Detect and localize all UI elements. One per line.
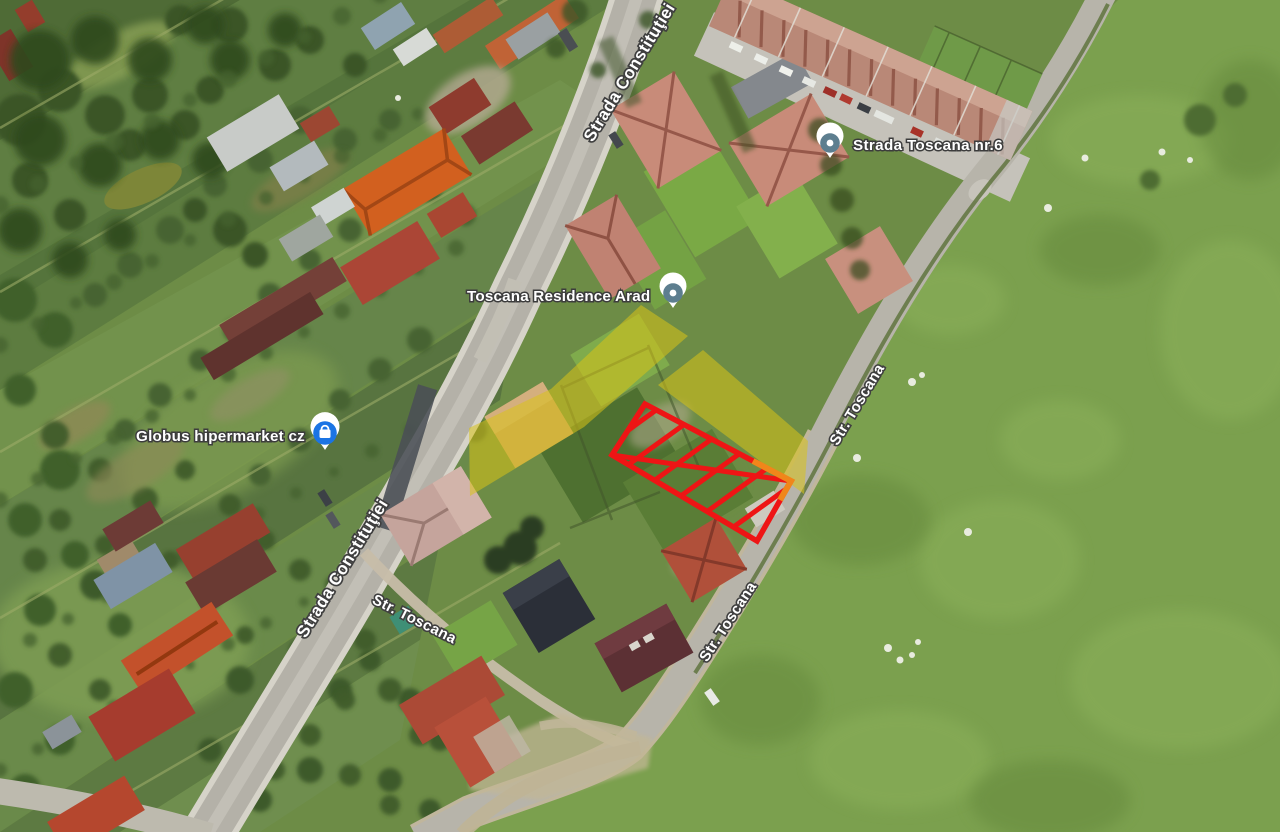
svg-text:Globus hipermarket cz: Globus hipermarket cz xyxy=(136,428,305,445)
svg-text:Toscana Residence Arad: Toscana Residence Arad xyxy=(467,288,650,305)
svg-text:Strada Toscana nr.6: Strada Toscana nr.6 xyxy=(853,137,1003,154)
